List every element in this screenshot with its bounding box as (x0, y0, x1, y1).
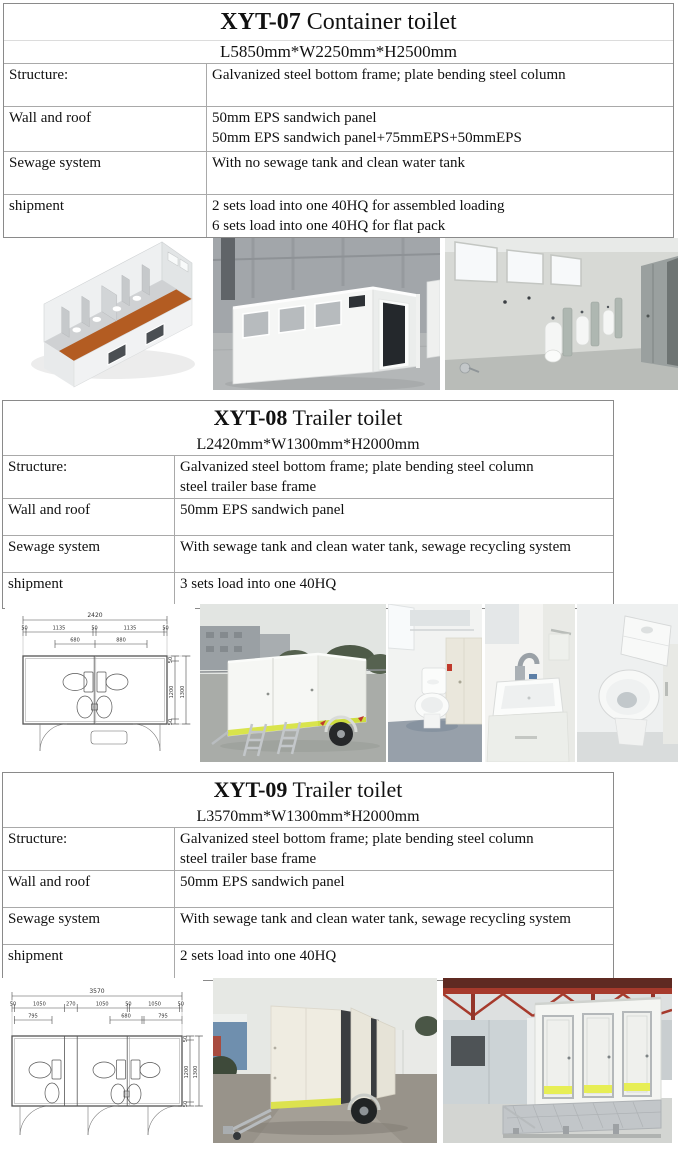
door (543, 1016, 573, 1098)
dimension-label: 3570 (89, 988, 104, 995)
row-value: 2 sets load into one 40HQ for assembled … (207, 195, 673, 237)
value-line: 6 sets load into one 40HQ for flat pack (212, 217, 668, 237)
value-line: 3 sets load into one 40HQ (180, 575, 608, 595)
trailer-exterior-illustration (200, 604, 386, 762)
under-cabinet (487, 712, 569, 762)
row-label: Structure: (4, 64, 207, 106)
model-code: XYT-08 (214, 405, 288, 430)
row-label: shipment (3, 945, 175, 980)
dimension-label: 1050 (148, 1002, 161, 1008)
photo-isometric-cutaway-render (8, 238, 207, 390)
value-line: 2 sets load into one 40HQ for assembled … (212, 197, 668, 217)
value-line: With sewage tank and clean water tank, s… (180, 910, 608, 930)
photo-toilet-closeup (577, 604, 678, 762)
row-label: Sewage system (4, 152, 207, 194)
container-exterior-illustration (213, 238, 440, 390)
row-label: Sewage system (3, 536, 175, 572)
value-line: 50mm EPS sandwich panel (212, 109, 668, 129)
urinal-interior-illustration (445, 238, 678, 390)
table-row: shipment 3 sets load into one 40HQ (3, 572, 613, 608)
table-row: Structure: Galvanized steel bottom frame… (3, 455, 613, 498)
dimension-label: 50 (162, 626, 168, 632)
product-dimensions: L2420mm*W1300mm*H2000mm (3, 435, 613, 455)
dimension-label: 50 (91, 626, 97, 632)
photo-trailer-toilet-exterior (200, 604, 386, 762)
photo-trailer-toilet-doors-open (213, 978, 437, 1143)
plan-fixtures (63, 672, 128, 718)
product-title: XYT-08 Trailer toilet (3, 401, 613, 435)
product-type: Trailer toilet (287, 405, 402, 430)
dimension-label: 1135 (53, 626, 66, 632)
model-code: XYT-09 (214, 777, 288, 802)
plan-doors (20, 1106, 178, 1135)
spec-sheet-page: XYT-07 Container toilet L5850mm*W2250mm*… (0, 0, 678, 1152)
photo-toilet-cubicle-interior (388, 604, 482, 762)
row-value: With sewage tank and clean water tank, s… (175, 908, 613, 944)
product-type: Trailer toilet (287, 777, 402, 802)
dimension-label: 50 (125, 1002, 131, 1008)
dimension-label: 880 (116, 638, 126, 644)
value-line: 50mm EPS sandwich panel (180, 501, 608, 521)
floor-plan-xyt09: 3570 50 1050 270 1050 50 1050 50 795 680… (0, 978, 203, 1143)
photo-container-toilet-exterior (213, 238, 440, 390)
toilet-closeup-illustration (577, 604, 678, 762)
row-label: Wall and roof (3, 499, 175, 535)
plan-walls (12, 1036, 182, 1106)
model-code: XYT-07 (220, 9, 300, 35)
door (583, 1014, 613, 1097)
table-row: Sewage system With sewage tank and clean… (3, 907, 613, 944)
trailer-three-doors-illustration (443, 978, 672, 1143)
row-label: Structure: (3, 456, 175, 498)
value-line: 2 sets load into one 40HQ (180, 947, 608, 967)
photo-row-xyt07 (0, 238, 678, 390)
dimension-label: 1300 (180, 686, 186, 699)
row-value: With no sewage tank and clean water tank (207, 152, 673, 194)
dimension-label: 1135 (124, 626, 137, 632)
product-type: Container toilet (301, 9, 457, 35)
wash-basin-illustration (485, 604, 575, 762)
table-row: Wall and roof 50mm EPS sandwich panel (3, 870, 613, 907)
dimension-label: 1300 (193, 1066, 199, 1079)
product-dimensions: L5850mm*W2250mm*H2500mm (4, 40, 673, 63)
row-value: Galvanized steel bottom frame; plate ben… (175, 828, 613, 870)
value-line: 50mm EPS sandwich panel (180, 873, 608, 893)
row-label: Sewage system (3, 908, 175, 944)
product-dimensions: L3570mm*W1300mm*H2000mm (3, 807, 613, 827)
toilet-cubicle-illustration (388, 604, 482, 762)
floor-plan-xyt08: 2420 50 1135 50 1135 50 680 880 (5, 604, 195, 762)
row-value: 50mm EPS sandwich panel (175, 871, 613, 907)
product-title: XYT-09 Trailer toilet (3, 773, 613, 807)
dimension-label: 50 (168, 657, 174, 663)
trailer-unit (535, 998, 661, 1106)
dimension-label: 50 (168, 719, 174, 725)
row-label: Structure: (3, 828, 175, 870)
plan-walls (23, 656, 167, 724)
floor-plan-drawing-xyt08: 2420 50 1135 50 1135 50 680 880 (5, 604, 195, 762)
row-value: With sewage tank and clean water tank, s… (175, 536, 613, 572)
dimension-label: 50 (10, 1002, 16, 1008)
basin (493, 678, 563, 716)
dimension-label: 50 (21, 626, 27, 632)
dimension-label: 2420 (87, 612, 102, 619)
value-line: steel trailer base frame (180, 850, 608, 870)
dimension-label: 50 (178, 1002, 184, 1008)
dimension-label: 680 (70, 638, 80, 644)
dimension-label: 50 (183, 1036, 189, 1042)
photo-row-xyt08: 2420 50 1135 50 1135 50 680 880 (0, 604, 678, 762)
row-value: 50mm EPS sandwich panel (175, 499, 613, 535)
value-line: With sewage tank and clean water tank, s… (180, 538, 608, 558)
plan-doors (40, 724, 160, 751)
floor-plan-drawing-xyt09: 3570 50 1050 270 1050 50 1050 50 795 680… (0, 978, 203, 1143)
table-row: Wall and roof 50mm EPS sandwich panel (3, 498, 613, 535)
row-value: 3 sets load into one 40HQ (175, 573, 613, 608)
row-value: 2 sets load into one 40HQ (175, 945, 613, 980)
row-label: Wall and roof (4, 107, 207, 151)
photo-trailer-toilet-three-doors (443, 978, 672, 1143)
photo-row-xyt09: 3570 50 1050 270 1050 50 1050 50 795 680… (0, 978, 678, 1143)
row-label: shipment (3, 573, 175, 608)
plan-fixtures (29, 1060, 160, 1104)
table-row: Structure: Galvanized steel bottom frame… (4, 63, 673, 106)
photo-urinal-room-interior (445, 238, 678, 390)
dimension-label: 270 (66, 1002, 76, 1008)
product-title: XYT-07 Container toilet (4, 4, 673, 40)
value-line: 50mm EPS sandwich panel+75mmEPS+50mmEPS (212, 129, 668, 149)
table-row: Structure: Galvanized steel bottom frame… (3, 827, 613, 870)
table-row: shipment 2 sets load into one 40HQ for a… (4, 194, 673, 237)
dimension-label: 1050 (33, 1002, 46, 1008)
table-row: Sewage system With no sewage tank and cl… (4, 151, 673, 194)
value-line: steel trailer base frame (180, 478, 608, 498)
spec-table-xyt09: XYT-09 Trailer toilet L3570mm*W1300mm*H2… (2, 772, 614, 981)
dimension-label: 795 (158, 1014, 168, 1020)
dimension-label: 680 (121, 1014, 131, 1020)
table-row: shipment 2 sets load into one 40HQ (3, 944, 613, 980)
value-line: Galvanized steel bottom frame; plate ben… (180, 458, 608, 478)
row-label: shipment (4, 195, 207, 237)
row-value: Galvanized steel bottom frame; plate ben… (207, 64, 673, 106)
vanity-cabinet (446, 638, 482, 724)
row-label: Wall and roof (3, 871, 175, 907)
spec-table-xyt07: XYT-07 Container toilet L5850mm*W2250mm*… (3, 3, 674, 238)
dimension-label: 1050 (96, 1002, 109, 1008)
table-row: Sewage system With sewage tank and clean… (3, 535, 613, 572)
value-line: Galvanized steel bottom frame; plate ben… (212, 66, 668, 86)
photo-wash-basin (485, 604, 575, 762)
spec-table-xyt08: XYT-08 Trailer toilet L2420mm*W1300mm*H2… (2, 400, 614, 609)
trailer-doors-open-illustration (213, 978, 437, 1143)
row-value: 50mm EPS sandwich panel 50mm EPS sandwic… (207, 107, 673, 151)
value-line: With no sewage tank and clean water tank (212, 154, 668, 174)
table-row: Wall and roof 50mm EPS sandwich panel 50… (4, 106, 673, 151)
door (623, 1012, 651, 1096)
row-value: Galvanized steel bottom frame; plate ben… (175, 456, 613, 498)
dimension-label: 1200 (184, 1066, 190, 1079)
value-line: Galvanized steel bottom frame; plate ben… (180, 830, 608, 850)
isometric-render-illustration (8, 238, 207, 390)
dimension-label: 50 (183, 1101, 189, 1107)
dimension-label: 1200 (169, 686, 175, 699)
dimension-label: 795 (28, 1014, 38, 1020)
stall-doors (641, 256, 678, 368)
